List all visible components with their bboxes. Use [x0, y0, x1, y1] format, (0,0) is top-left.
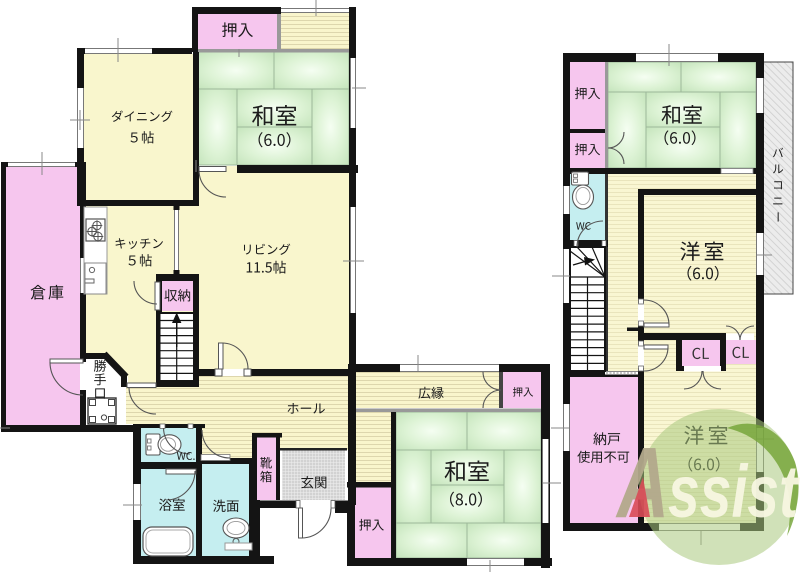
- svg-text:ssist: ssist: [668, 450, 800, 533]
